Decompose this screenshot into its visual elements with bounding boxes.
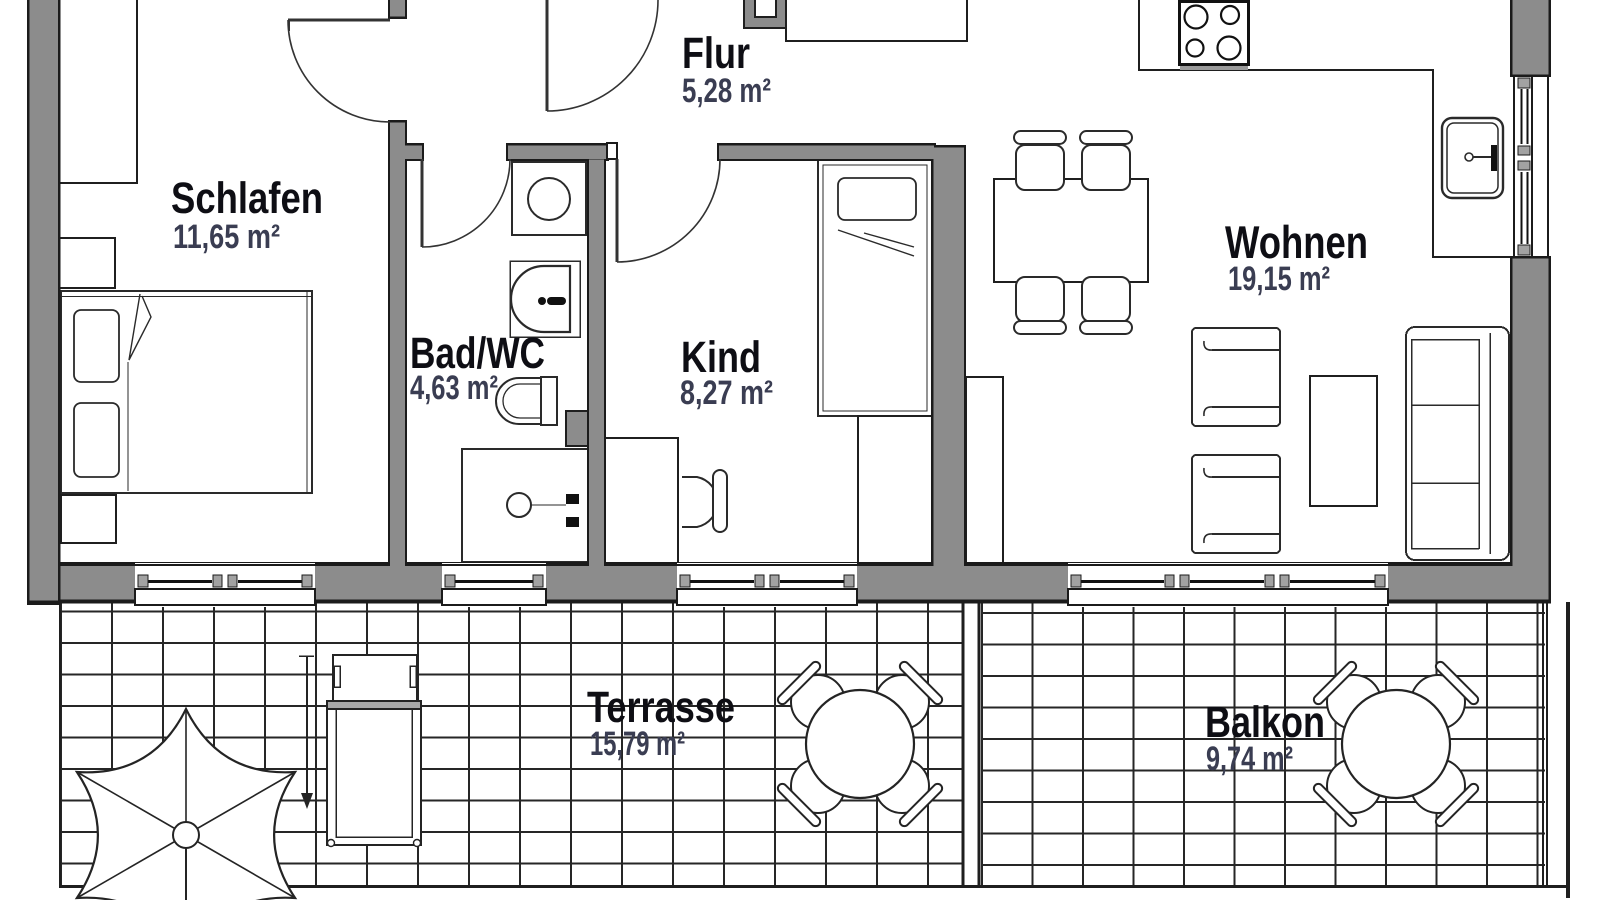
svg-text:15,79 m²: 15,79 m² — [590, 725, 685, 763]
svg-text:Schlafen: Schlafen — [171, 174, 323, 223]
svg-text:8,27 m²: 8,27 m² — [680, 374, 773, 412]
svg-text:Flur: Flur — [682, 29, 750, 78]
svg-text:11,65 m²: 11,65 m² — [173, 218, 280, 256]
svg-text:5,28 m²: 5,28 m² — [682, 72, 771, 110]
svg-text:4,63 m²: 4,63 m² — [410, 369, 498, 407]
svg-text:19,15 m²: 19,15 m² — [1228, 260, 1330, 298]
svg-text:9,74 m²: 9,74 m² — [1206, 740, 1293, 778]
